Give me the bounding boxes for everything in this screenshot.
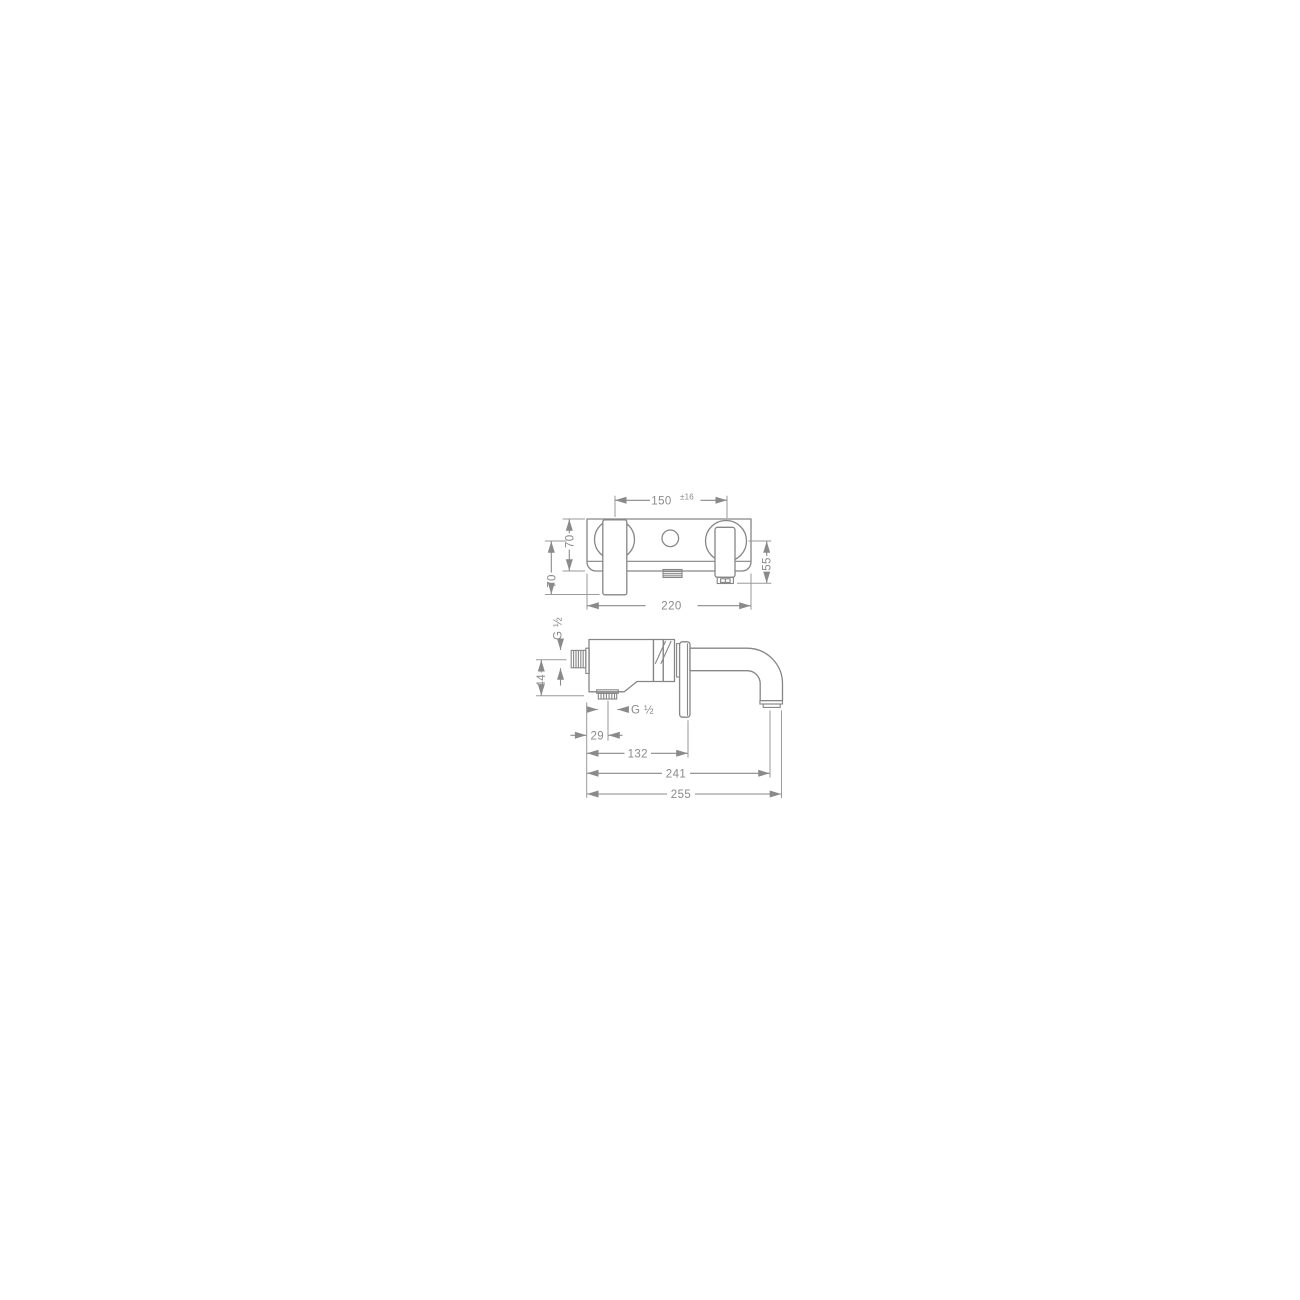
right-handle (715, 527, 735, 577)
center-cap-circle (662, 530, 679, 547)
dim-label-spout-reach: 255 (671, 789, 691, 801)
dim-label-lever-drop: 70 (546, 574, 558, 588)
drawing-canvas: 150 ±16 70 70 55 (0, 0, 1300, 1300)
wall-escutcheon (680, 642, 690, 717)
technical-drawing: 150 ±16 70 70 55 (0, 0, 1300, 1300)
dim-label-outlet-thread: G ½ (631, 705, 654, 717)
dim-label-inlet-thread: G ½ (553, 617, 565, 640)
dim-label-hole-spacing-tolerance: ±16 (680, 492, 694, 501)
dim-inlet-drop: 44 (536, 660, 584, 696)
lever-side (654, 640, 675, 682)
dim-hole-spacing: 150 ±16 (615, 492, 727, 518)
dim-rosette-depth: 132 (587, 748, 688, 760)
side-view: G ½ 44 G ½ 29 132 (536, 617, 783, 801)
mixer-body (589, 640, 654, 692)
spout (690, 648, 783, 700)
dim-plate-height: 70 (563, 519, 586, 571)
front-view: 150 ±16 70 70 55 (545, 492, 774, 612)
dim-label-handle-drop: 55 (762, 557, 774, 571)
dim-label-overall-width: 220 (661, 601, 681, 613)
dim-spout-reach: 255 (587, 789, 781, 801)
lever-handle (603, 520, 627, 595)
dim-spout-center-reach: 241 (587, 768, 770, 780)
spout-aerator (763, 704, 780, 707)
dim-label-hole-spacing: 150 (651, 495, 671, 507)
dim-label-rosette-depth: 132 (628, 748, 648, 760)
inlet-thread (571, 650, 586, 667)
dim-label-inlet-drop: 44 (536, 674, 548, 688)
dim-outlet-thread: G ½ (587, 705, 654, 717)
dim-outlet-offset: 29 (571, 730, 623, 742)
dim-label-spout-center-reach: 241 (666, 768, 686, 780)
dim-label-outlet-offset: 29 (591, 730, 605, 742)
